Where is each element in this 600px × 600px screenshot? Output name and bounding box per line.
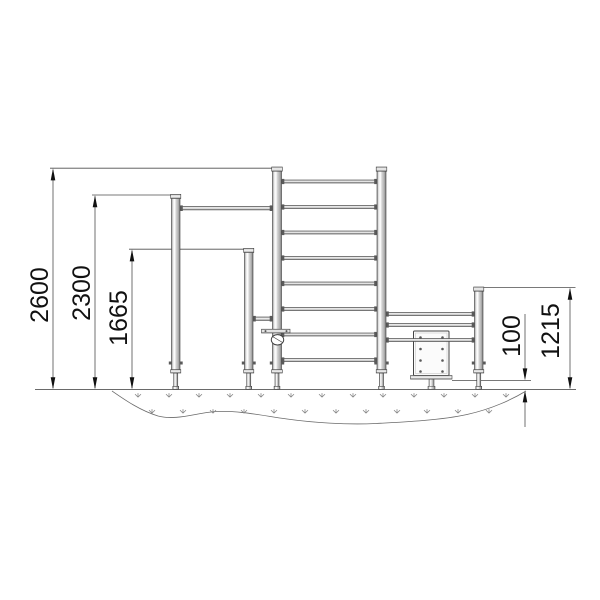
ladder-rung [282,255,378,260]
grass-tick-icon [196,393,202,397]
dim-100-label: 100 [498,315,526,357]
ladder-rung [282,179,378,184]
grass-tick-icon [333,409,339,413]
grass-tick-icon [180,409,186,413]
ladder-rung [282,281,378,286]
dim-2600-label: 2600 [26,267,54,323]
grass-tick-icon [441,393,447,397]
grass-tick-icon [319,393,325,397]
surfacing-pit-outline [112,391,526,424]
pullup-bar [180,205,273,211]
grass-tick-icon [302,409,308,413]
grass-tick-icon [135,393,141,397]
grass-tick-icon [271,409,277,413]
right-frame-bar [386,322,475,327]
bolt-icon [441,348,444,351]
grass-tick-icon [350,393,356,397]
bolt-icon [419,359,422,362]
ladder-rung [282,230,378,235]
dim-1665-label: 1665 [105,290,133,346]
low-parallel-bar [253,316,273,322]
bolt-icon [441,370,444,373]
post-2300 [169,194,183,389]
grass-tick-icon [394,409,400,413]
dim-2300-label: 2300 [68,265,96,321]
grass-tick-icon [363,409,369,413]
right-frame-bar [386,311,475,316]
grass-tick-icon [455,409,461,413]
grass-tick-icon [258,393,264,397]
dimension-2600: 2600 [26,168,273,389]
ladder-post-right [374,167,388,389]
bolt-icon [441,359,444,362]
grass-tick-icon [166,393,172,397]
grass-tick-icon [288,393,294,397]
ladder-rung [282,332,378,337]
grass-marks [135,393,509,413]
grass-tick-icon [411,393,417,397]
equipment-structure [169,167,486,389]
ladder-rung [282,204,378,209]
grass-tick-icon [380,393,386,397]
ladder-post-left [270,167,284,389]
grass-tick-icon [472,393,478,397]
grass-tick-icon [227,393,233,397]
bolt-icon [419,348,422,351]
grass-tick-icon [503,393,509,397]
technical-drawing: 2600 2300 1665 1215 100 [0,0,600,600]
grass-tick-icon [424,409,430,413]
drawing-canvas: 2600 2300 1665 1215 100 [0,0,600,600]
grass-tick-icon [486,409,492,413]
ladder-rung [282,306,378,311]
ground [35,389,576,424]
grass-tick-icon [210,409,216,413]
bolt-icon [419,370,422,373]
dim-1215-label: 1215 [537,303,565,359]
ladder-rung [282,357,378,362]
clamp-hook [262,329,291,345]
